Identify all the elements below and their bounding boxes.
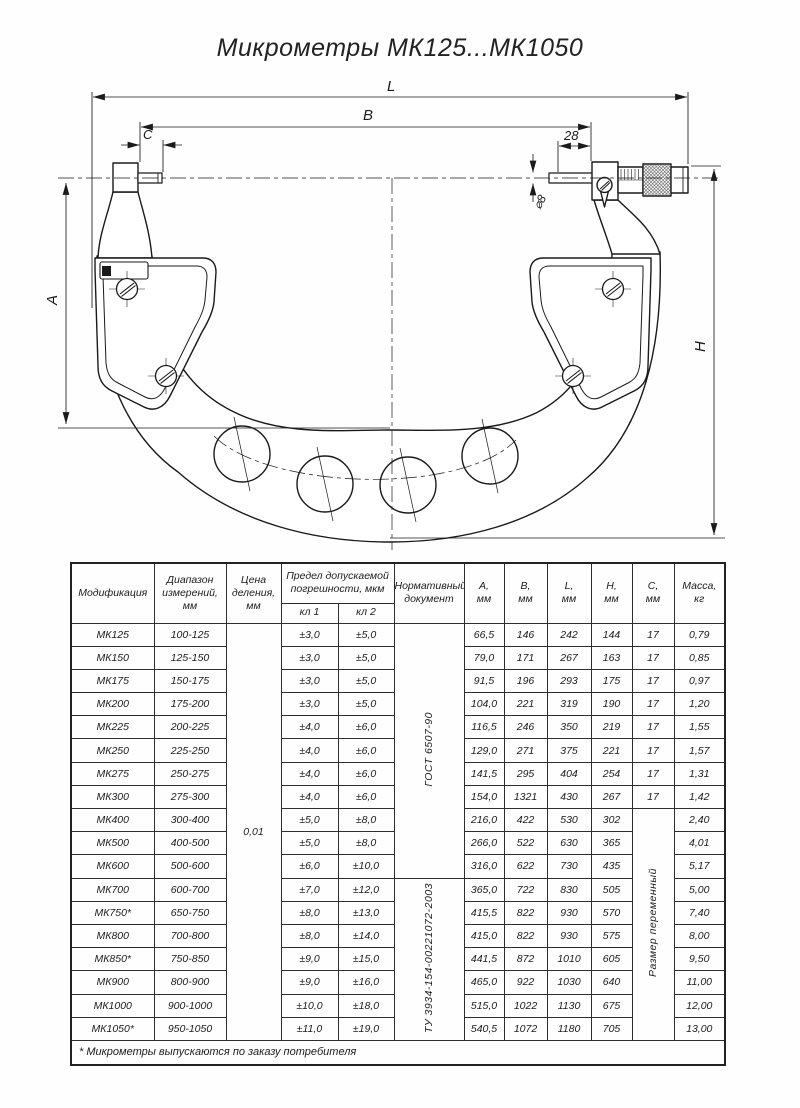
table-cell: ±6,0 bbox=[338, 785, 394, 808]
table-cell: 196 bbox=[504, 669, 547, 692]
col-header-modification: Модификация bbox=[71, 563, 154, 623]
dim-label-L: L bbox=[387, 78, 395, 95]
table-cell: МК400 bbox=[71, 809, 154, 832]
table-cell: 630 bbox=[547, 832, 591, 855]
table-row: МК700600-700±7,0±12,0ТУ 3934-154-0022107… bbox=[71, 878, 725, 901]
table-cell: 17 bbox=[632, 693, 674, 716]
table-cell: 267 bbox=[547, 646, 591, 669]
table-cell: МК225 bbox=[71, 716, 154, 739]
table-cell: МК125 bbox=[71, 623, 154, 646]
table-cell: МК750* bbox=[71, 901, 154, 924]
table-cell: 750-850 bbox=[154, 948, 226, 971]
table-cell: ±3,0 bbox=[281, 623, 338, 646]
table-cell: 650-750 bbox=[154, 901, 226, 924]
table-cell: 144 bbox=[591, 623, 632, 646]
table-cell: 0,79 bbox=[674, 623, 725, 646]
table-cell: 1,20 bbox=[674, 693, 725, 716]
table-cell: ±5,0 bbox=[338, 669, 394, 692]
table-cell: МК850* bbox=[71, 948, 154, 971]
table-cell: 700-800 bbox=[154, 924, 226, 947]
table-cell: ±6,0 bbox=[338, 762, 394, 785]
table-cell: 17 bbox=[632, 762, 674, 785]
table-cell: ±5,0 bbox=[281, 832, 338, 855]
table-cell: 171 bbox=[504, 646, 547, 669]
table-cell: 872 bbox=[504, 948, 547, 971]
table-cell: 219 bbox=[591, 716, 632, 739]
table-cell: ГОСТ 6507-90 bbox=[394, 623, 464, 878]
table-cell: 66,5 bbox=[464, 623, 504, 646]
table-cell: ±5,0 bbox=[338, 693, 394, 716]
table-cell: ±5,0 bbox=[338, 646, 394, 669]
table-cell: 404 bbox=[547, 762, 591, 785]
table-cell: 12,00 bbox=[674, 994, 725, 1017]
table-cell: ±18,0 bbox=[338, 994, 394, 1017]
table-cell: ±7,0 bbox=[281, 878, 338, 901]
table-cell: 17 bbox=[632, 739, 674, 762]
table-cell: 1010 bbox=[547, 948, 591, 971]
table-cell: 125-150 bbox=[154, 646, 226, 669]
table-cell: 830 bbox=[547, 878, 591, 901]
table-cell: МК250 bbox=[71, 739, 154, 762]
table-cell: 104,0 bbox=[464, 693, 504, 716]
table-cell: МК600 bbox=[71, 855, 154, 878]
table-cell: 922 bbox=[504, 971, 547, 994]
table-cell: 415,5 bbox=[464, 901, 504, 924]
table-cell: Размер переменный bbox=[632, 809, 674, 1041]
table-cell: 435 bbox=[591, 855, 632, 878]
table-cell: 575 bbox=[591, 924, 632, 947]
name-plate-icon bbox=[100, 262, 148, 279]
table-cell: 293 bbox=[547, 669, 591, 692]
table-cell: ±10,0 bbox=[281, 994, 338, 1017]
right-arm bbox=[594, 200, 660, 254]
table-cell: 17 bbox=[632, 646, 674, 669]
table-cell: ±10,0 bbox=[338, 855, 394, 878]
table-cell: МК300 bbox=[71, 785, 154, 808]
table-cell: 200-225 bbox=[154, 716, 226, 739]
table-cell: МК150 bbox=[71, 646, 154, 669]
table-cell: 1321 bbox=[504, 785, 547, 808]
table-cell: 163 bbox=[591, 646, 632, 669]
dim-label-C: C bbox=[143, 127, 153, 142]
table-cell: ±4,0 bbox=[281, 762, 338, 785]
col-header-division: Цена деления, мм bbox=[226, 563, 281, 623]
table-cell: 1,42 bbox=[674, 785, 725, 808]
col-header-mass: Масса, кг bbox=[674, 563, 725, 623]
dim-label-H: H bbox=[692, 341, 709, 352]
table-cell: МК175 bbox=[71, 669, 154, 692]
table-cell: ±6,0 bbox=[281, 855, 338, 878]
table-cell: 17 bbox=[632, 669, 674, 692]
anvil-block bbox=[113, 163, 138, 192]
dim-label-A: A bbox=[44, 295, 61, 306]
table-cell: 730 bbox=[547, 855, 591, 878]
table-cell: 316,0 bbox=[464, 855, 504, 878]
table-cell: 221 bbox=[504, 693, 547, 716]
table-cell: ±3,0 bbox=[281, 646, 338, 669]
table-cell: 600-700 bbox=[154, 878, 226, 901]
col-header-b: В, мм bbox=[504, 563, 547, 623]
table-cell: ±19,0 bbox=[338, 1017, 394, 1040]
table-cell: 150-175 bbox=[154, 669, 226, 692]
table-cell: 540,5 bbox=[464, 1017, 504, 1040]
table-cell: 141,5 bbox=[464, 762, 504, 785]
table-cell: 930 bbox=[547, 901, 591, 924]
col-header-error-limit: Предел допускаемой погрешности, мкм bbox=[281, 563, 394, 603]
spec-table: Модификация Диапазон измерений, мм Цена … bbox=[70, 562, 726, 1066]
table-cell: 5,00 bbox=[674, 878, 725, 901]
table-cell: ±4,0 bbox=[281, 785, 338, 808]
table-cell: МК900 bbox=[71, 971, 154, 994]
col-header-class2: кл 2 bbox=[338, 603, 394, 623]
footnote-row: * Микрометры выпускаются по заказу потре… bbox=[71, 1040, 725, 1065]
table-cell: 271 bbox=[504, 739, 547, 762]
table-cell: 17 bbox=[632, 623, 674, 646]
table-cell: 267 bbox=[591, 785, 632, 808]
table-cell: 430 bbox=[547, 785, 591, 808]
table-cell: 8,00 bbox=[674, 924, 725, 947]
table-cell: 465,0 bbox=[464, 971, 504, 994]
table-cell: 1,31 bbox=[674, 762, 725, 785]
table-cell: 400-500 bbox=[154, 832, 226, 855]
table-cell: 216,0 bbox=[464, 809, 504, 832]
table-cell: 515,0 bbox=[464, 994, 504, 1017]
table-cell: 605 bbox=[591, 948, 632, 971]
table-cell: ±11,0 bbox=[281, 1017, 338, 1040]
table-cell: 13,00 bbox=[674, 1017, 725, 1040]
dim-label-B: B bbox=[363, 107, 373, 124]
col-header-range: Диапазон измерений, мм bbox=[154, 563, 226, 623]
table-cell: МК800 bbox=[71, 924, 154, 947]
table-cell: 722 bbox=[504, 878, 547, 901]
table-cell: 5,17 bbox=[674, 855, 725, 878]
table-cell: 79,0 bbox=[464, 646, 504, 669]
table-cell: 0,01 bbox=[226, 623, 281, 1040]
table-cell: 530 bbox=[547, 809, 591, 832]
col-header-l: L, мм bbox=[547, 563, 591, 623]
table-cell: 100-125 bbox=[154, 623, 226, 646]
table-cell: 365 bbox=[591, 832, 632, 855]
table-cell: 365,0 bbox=[464, 878, 504, 901]
table-cell: 221 bbox=[591, 739, 632, 762]
table-row: МК125100-1250,01±3,0±5,0ГОСТ 6507-9066,5… bbox=[71, 623, 725, 646]
table-cell: 175-200 bbox=[154, 693, 226, 716]
table-cell: 17 bbox=[632, 785, 674, 808]
table-cell: 1180 bbox=[547, 1017, 591, 1040]
table-cell: 415,0 bbox=[464, 924, 504, 947]
table-cell: ±4,0 bbox=[281, 716, 338, 739]
table-cell: 9,50 bbox=[674, 948, 725, 971]
table-cell: 500-600 bbox=[154, 855, 226, 878]
table-cell: ±16,0 bbox=[338, 971, 394, 994]
table-cell: 254 bbox=[591, 762, 632, 785]
table-cell: ±6,0 bbox=[338, 739, 394, 762]
table-cell: 7,40 bbox=[674, 901, 725, 924]
table-cell: ТУ 3934-154-00221072-2003 bbox=[394, 878, 464, 1040]
table-cell: 1022 bbox=[504, 994, 547, 1017]
table-cell: 441,5 bbox=[464, 948, 504, 971]
table-cell: МК1000 bbox=[71, 994, 154, 1017]
table-cell: ±6,0 bbox=[338, 716, 394, 739]
table-cell: 0,85 bbox=[674, 646, 725, 669]
table-cell: 0,97 bbox=[674, 669, 725, 692]
table-cell: ±8,0 bbox=[281, 924, 338, 947]
table-cell: 225-250 bbox=[154, 739, 226, 762]
table-cell: 705 bbox=[591, 1017, 632, 1040]
table-cell: ±8,0 bbox=[338, 832, 394, 855]
table-cell: 522 bbox=[504, 832, 547, 855]
table-cell: ±3,0 bbox=[281, 669, 338, 692]
table-cell: ±12,0 bbox=[338, 878, 394, 901]
col-header-normative: Нормативный документ bbox=[394, 563, 464, 623]
table-cell: 1130 bbox=[547, 994, 591, 1017]
table-cell: 570 bbox=[591, 901, 632, 924]
col-header-h: Н, мм bbox=[591, 563, 632, 623]
table-cell: 1030 bbox=[547, 971, 591, 994]
col-header-c: С, мм bbox=[632, 563, 674, 623]
table-cell: 175 bbox=[591, 669, 632, 692]
table-cell: 300-400 bbox=[154, 809, 226, 832]
table-cell: ±4,0 bbox=[281, 739, 338, 762]
table-cell: МК1050* bbox=[71, 1017, 154, 1040]
table-cell: ±9,0 bbox=[281, 971, 338, 994]
right-grip bbox=[530, 258, 651, 409]
table-cell: 154,0 bbox=[464, 785, 504, 808]
dim-label-28: 28 bbox=[563, 128, 579, 143]
table-cell: 375 bbox=[547, 739, 591, 762]
table-cell: 2,40 bbox=[674, 809, 725, 832]
table-cell: ±13,0 bbox=[338, 901, 394, 924]
table-cell: 822 bbox=[504, 901, 547, 924]
table-cell: 116,5 bbox=[464, 716, 504, 739]
table-cell: 822 bbox=[504, 924, 547, 947]
table-cell: 302 bbox=[591, 809, 632, 832]
table-cell: 675 bbox=[591, 994, 632, 1017]
table-cell: 900-1000 bbox=[154, 994, 226, 1017]
table-cell: 190 bbox=[591, 693, 632, 716]
col-header-a: А, мм bbox=[464, 563, 504, 623]
table-cell: 295 bbox=[504, 762, 547, 785]
table-cell: 350 bbox=[547, 716, 591, 739]
table-cell: 319 bbox=[547, 693, 591, 716]
table-cell: МК200 bbox=[71, 693, 154, 716]
ratchet-cap bbox=[671, 167, 688, 193]
table-cell: 146 bbox=[504, 623, 547, 646]
left-arm bbox=[98, 192, 152, 258]
table-footnote: * Микрометры выпускаются по заказу потре… bbox=[71, 1040, 725, 1065]
table-cell: 4,01 bbox=[674, 832, 725, 855]
table-cell: ±15,0 bbox=[338, 948, 394, 971]
col-header-class1: кл 1 bbox=[281, 603, 338, 623]
table-cell: 422 bbox=[504, 809, 547, 832]
table-cell: 275-300 bbox=[154, 785, 226, 808]
frame-body bbox=[95, 162, 688, 542]
table-cell: МК700 bbox=[71, 878, 154, 901]
table-cell: 242 bbox=[547, 623, 591, 646]
table-cell: 17 bbox=[632, 716, 674, 739]
table-cell: 640 bbox=[591, 971, 632, 994]
spec-table-body: МК125100-1250,01±3,0±5,0ГОСТ 6507-9066,5… bbox=[71, 623, 725, 1040]
table-cell: ±9,0 bbox=[281, 948, 338, 971]
table-cell: 246 bbox=[504, 716, 547, 739]
table-cell: ±14,0 bbox=[338, 924, 394, 947]
table-cell: 622 bbox=[504, 855, 547, 878]
table-cell: 930 bbox=[547, 924, 591, 947]
table-cell: МК275 bbox=[71, 762, 154, 785]
table-cell: 800-900 bbox=[154, 971, 226, 994]
table-cell: ±8,0 bbox=[338, 809, 394, 832]
table-cell: ±5,0 bbox=[281, 809, 338, 832]
table-cell: ±3,0 bbox=[281, 693, 338, 716]
table-cell: 91,5 bbox=[464, 669, 504, 692]
table-cell: 129,0 bbox=[464, 739, 504, 762]
table-cell: 1,57 bbox=[674, 739, 725, 762]
table-cell: 505 bbox=[591, 878, 632, 901]
table-cell: 1,55 bbox=[674, 716, 725, 739]
table-cell: МК500 bbox=[71, 832, 154, 855]
table-cell: 250-275 bbox=[154, 762, 226, 785]
table-cell: ±8,0 bbox=[281, 901, 338, 924]
table-cell: ±5,0 bbox=[338, 623, 394, 646]
table-cell: 950-1050 bbox=[154, 1017, 226, 1040]
table-cell: 1072 bbox=[504, 1017, 547, 1040]
table-cell: 266,0 bbox=[464, 832, 504, 855]
micrometer-drawing: L B C 28 ⌀8 A H bbox=[0, 0, 800, 558]
table-cell: 11,00 bbox=[674, 971, 725, 994]
